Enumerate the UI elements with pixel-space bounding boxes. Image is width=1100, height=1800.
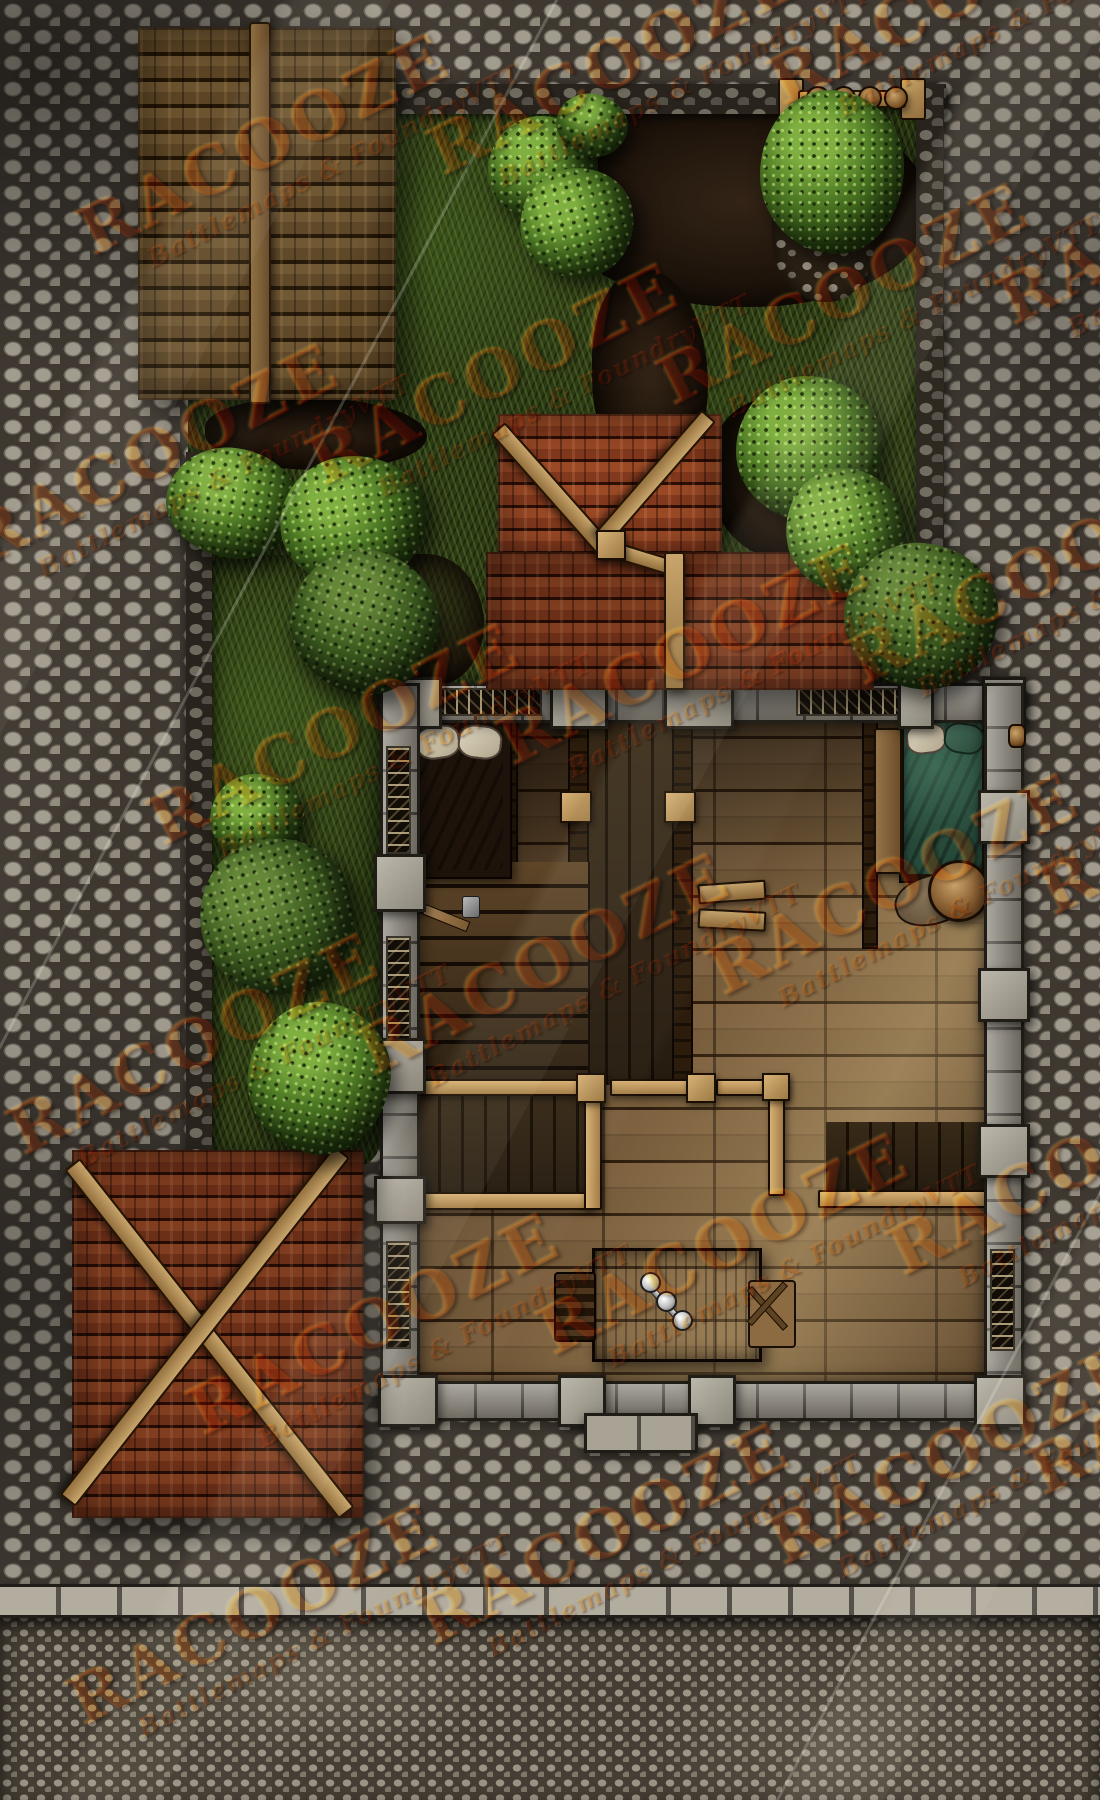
watermark-line1: RACOOZE	[700, 739, 1100, 1003]
watermark-line2: Battlemaps & FoundryVTT	[423, 878, 807, 1093]
watermark-line2: Battlemaps & FoundryVTT	[33, 368, 417, 583]
watermark: RACOOZEBattlemaps & FoundryVTT	[0, 309, 417, 605]
watermark-line1: RACOOZE	[1020, 1239, 1100, 1503]
watermark: RACOOZEBattlemaps & FoundryVTT	[60, 1469, 517, 1765]
watermark-line2: Battlemaps & FoundryVTT	[833, 1368, 1100, 1583]
watermark: RACOOZEBattlemaps & FoundryVTT	[350, 819, 807, 1115]
watermark: RACOOZEBattlemaps & FoundryVTT	[1030, 659, 1100, 955]
watermark-line2: Battlemaps & FoundryVTT	[833, 0, 1100, 123]
watermark-line1: RACOOZE	[350, 819, 791, 1083]
watermark: RACOOZEBattlemaps & FoundryVTT	[0, 899, 457, 1195]
watermark-line1: RACOOZE	[410, 1389, 851, 1653]
watermark-line1: RACOOZE	[140, 589, 581, 853]
watermark: RACOOZEBattlemaps & FoundryVTT	[490, 509, 947, 805]
watermark-line2: Battlemaps & FoundryVTT	[953, 1078, 1100, 1293]
watermark-line2: Battlemaps & FoundryVTT	[213, 648, 597, 863]
watermark: RACOOZEBattlemaps & FoundryVTT	[760, 0, 1100, 145]
watermark-line1: RACOOZE	[490, 509, 931, 773]
watermark-line2: Battlemaps & FoundryVTT	[253, 1238, 637, 1453]
watermark-line1: RACOOZE	[530, 1099, 971, 1363]
watermark-line2: Battlemaps & FoundryVTT	[373, 288, 757, 503]
watermark-line1: RACOOZE	[650, 149, 1091, 413]
watermark-line1: RACOOZE	[990, 69, 1100, 333]
watermark-line2: Battlemaps & FoundryVTT	[773, 798, 1100, 1013]
watermark-line1: RACOOZE	[760, 1309, 1100, 1573]
watermark-line2: Battlemaps & FoundryVTT	[1063, 128, 1100, 343]
watermark-line2: Battlemaps & FoundryVTT	[493, 0, 877, 193]
watermark: RACOOZEBattlemaps & FoundryVTT	[70, 0, 527, 295]
watermark-line1: RACOOZE	[70, 0, 511, 263]
watermark: RACOOZEBattlemaps & FoundryVTT	[1020, 1239, 1100, 1535]
watermark: RACOOZEBattlemaps & FoundryVTT	[420, 0, 877, 215]
watermark: RACOOZEBattlemaps & FoundryVTT	[700, 739, 1100, 1035]
watermark-line2: Battlemaps & FoundryVTT	[913, 488, 1100, 703]
watermark: RACOOZEBattlemaps & FoundryVTT	[300, 229, 757, 525]
watermark: RACOOZEBattlemaps & FoundryVTT	[530, 1099, 987, 1395]
watermark-line1: RACOOZE	[180, 1179, 621, 1443]
watermark-line2: Battlemaps & FoundryVTT	[723, 208, 1100, 423]
watermark: RACOOZEBattlemaps & FoundryVTT	[840, 429, 1100, 725]
watermark-line2: Battlemaps & FoundryVTT	[1093, 1298, 1100, 1513]
watermark-line2: Battlemaps & FoundryVTT	[143, 58, 527, 273]
watermark-line1: RACOOZE	[0, 309, 401, 573]
watermark-line2: Battlemaps & FoundryVTT	[73, 958, 457, 1173]
watermark-line2: Battlemaps & FoundryVTT	[603, 1158, 987, 1373]
watermark: RACOOZEBattlemaps & FoundryVTT	[880, 1019, 1100, 1315]
watermark: RACOOZEBattlemaps & FoundryVTT	[650, 149, 1100, 445]
watermark-line1: RACOOZE	[1030, 659, 1100, 923]
watermark-layer: RACOOZEBattlemaps & FoundryVTTRACOOZEBat…	[0, 0, 1100, 1800]
watermark-line1: RACOOZE	[880, 1019, 1100, 1283]
watermark-line1: RACOOZE	[840, 429, 1100, 693]
watermark: RACOOZEBattlemaps & FoundryVTT	[760, 1309, 1100, 1605]
watermark-line1: RACOOZE	[60, 1469, 501, 1733]
watermark-line1: RACOOZE	[420, 0, 861, 183]
watermark: RACOOZEBattlemaps & FoundryVTT	[140, 589, 597, 885]
watermark: RACOOZEBattlemaps & FoundryVTT	[410, 1389, 867, 1685]
watermark-line1: RACOOZE	[0, 899, 441, 1163]
watermark-line2: Battlemaps & FoundryVTT	[133, 1528, 517, 1743]
watermark: RACOOZEBattlemaps & FoundryVTT	[180, 1179, 637, 1475]
watermark-line1: RACOOZE	[760, 0, 1100, 113]
watermark-line2: Battlemaps & FoundryVTT	[563, 568, 947, 783]
watermark-line1: RACOOZE	[300, 229, 741, 493]
battlemap-canvas: RACOOZEBattlemaps & FoundryVTTRACOOZEBat…	[0, 0, 1100, 1800]
watermark: RACOOZEBattlemaps & FoundryVTT	[990, 69, 1100, 365]
watermark-line2: Battlemaps & FoundryVTT	[483, 1448, 867, 1663]
